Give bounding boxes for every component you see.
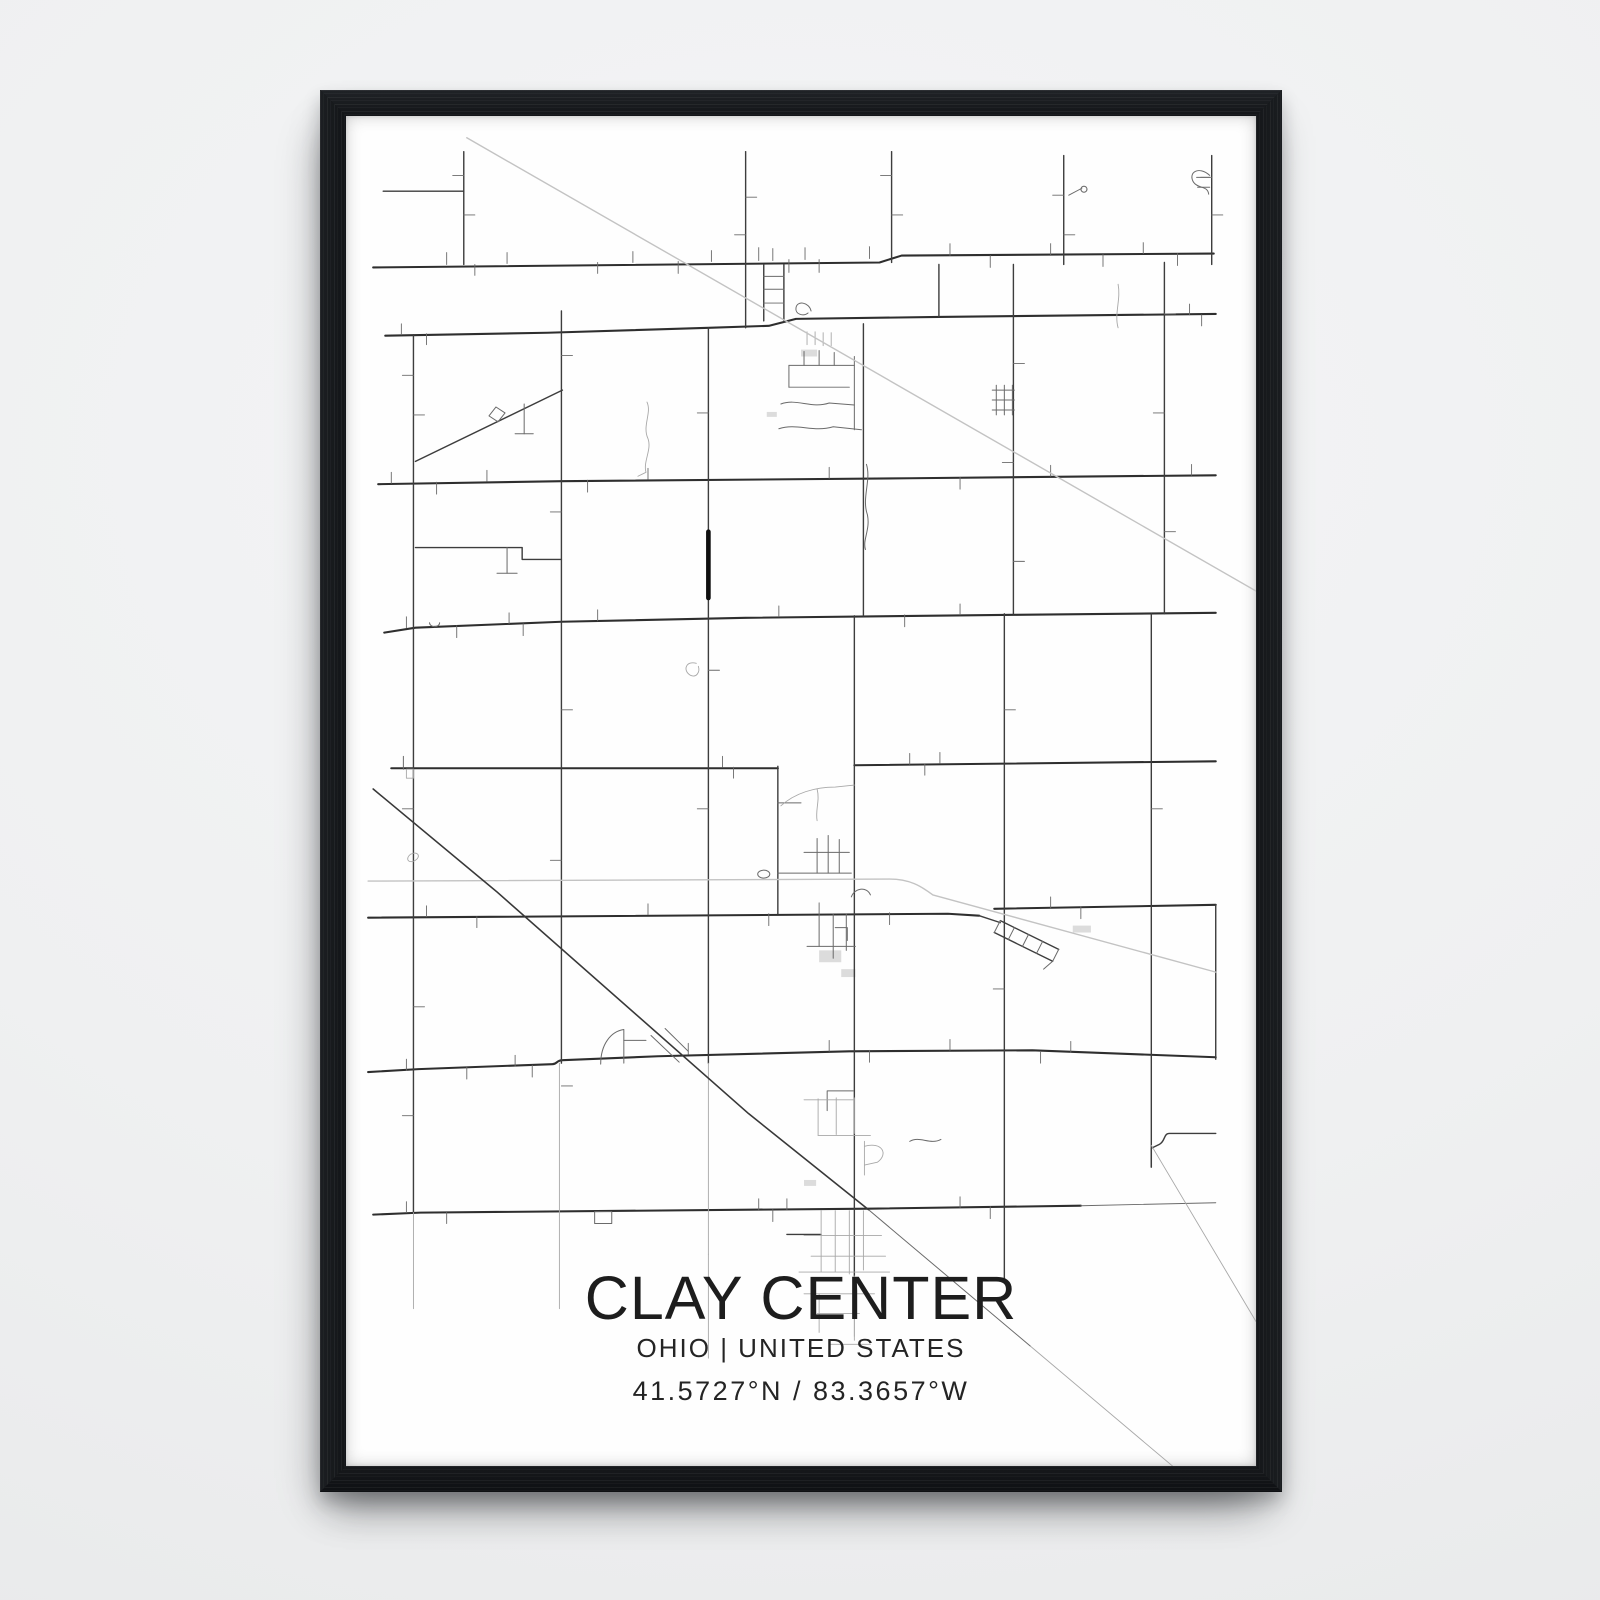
poster-coordinates: 41.5727°N / 83.3657°W [346,1378,1256,1405]
map-poster: CLAY CENTER OHIO | UNITED STATES 41.5727… [346,116,1256,1466]
poster-title: CLAY CENTER [346,1268,1256,1329]
frame-rail-right [1256,90,1282,1492]
frame-rail-top [320,90,1282,116]
poster-caption: CLAY CENTER OHIO | UNITED STATES 41.5727… [346,116,1256,1466]
frame-rail-left [320,90,346,1492]
frame-rail-bottom [320,1466,1282,1492]
picture-frame: CLAY CENTER OHIO | UNITED STATES 41.5727… [320,90,1282,1492]
poster-subtitle: OHIO | UNITED STATES [346,1335,1256,1361]
wall-background: CLAY CENTER OHIO | UNITED STATES 41.5727… [0,0,1600,1600]
